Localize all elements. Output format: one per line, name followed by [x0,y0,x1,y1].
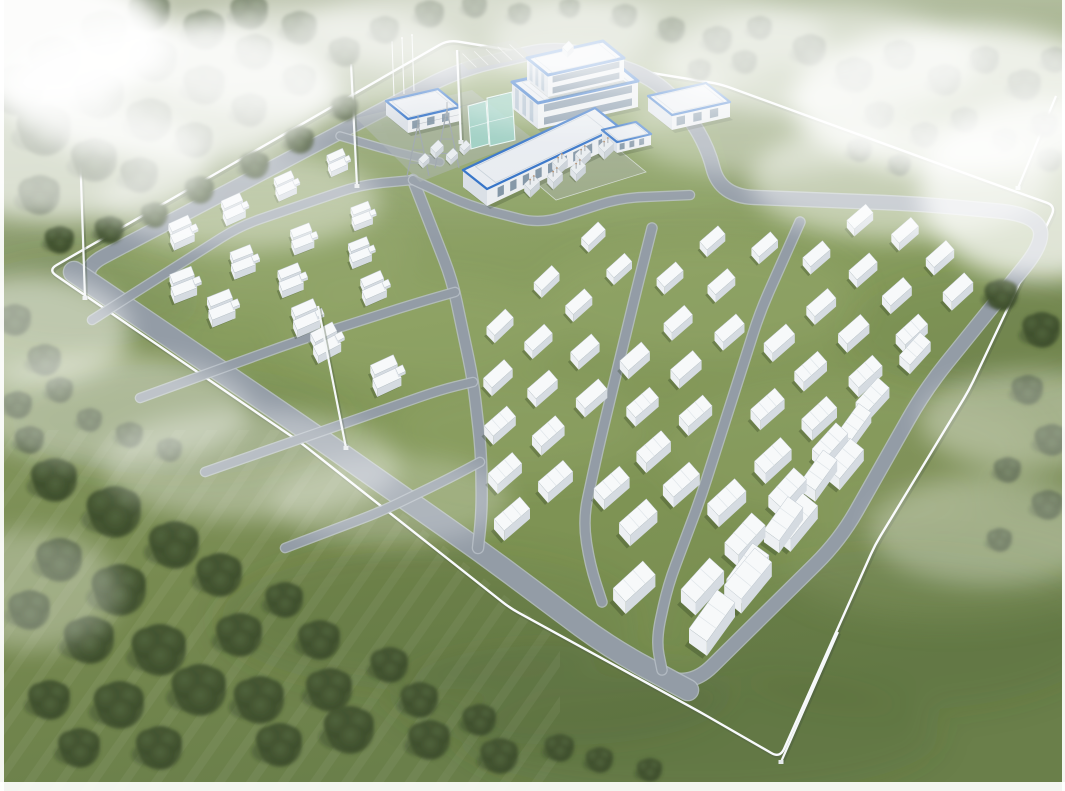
scan-border [0,0,4,791]
scan-border [0,782,1065,791]
mast-base [779,760,784,764]
aerial-render-figure [0,0,1065,791]
bess-plant-aerial-rendering [0,0,1065,791]
